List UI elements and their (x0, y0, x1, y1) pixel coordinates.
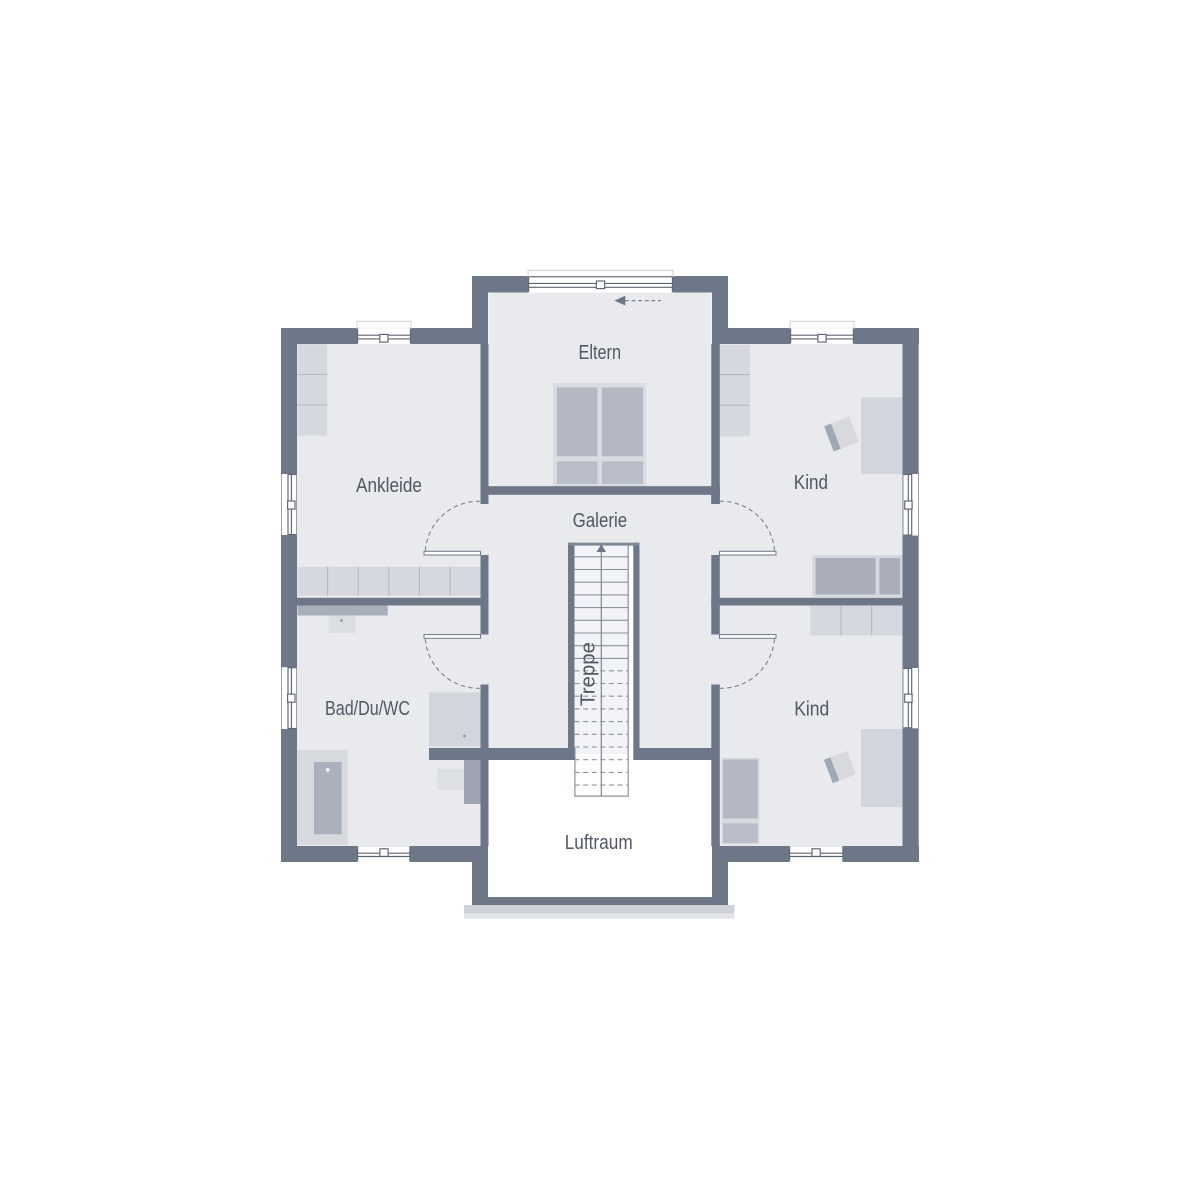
svg-text:Eltern: Eltern (579, 342, 622, 364)
svg-text:Galerie: Galerie (573, 510, 628, 532)
svg-text:Kind: Kind (794, 472, 828, 494)
svg-text:Luftraum: Luftraum (565, 832, 633, 854)
svg-text:Bad/Du/WC: Bad/Du/WC (325, 698, 410, 720)
svg-text:Treppe: Treppe (578, 642, 600, 706)
svg-text:Kind: Kind (794, 699, 829, 721)
svg-text:Ankleide: Ankleide (356, 475, 422, 497)
